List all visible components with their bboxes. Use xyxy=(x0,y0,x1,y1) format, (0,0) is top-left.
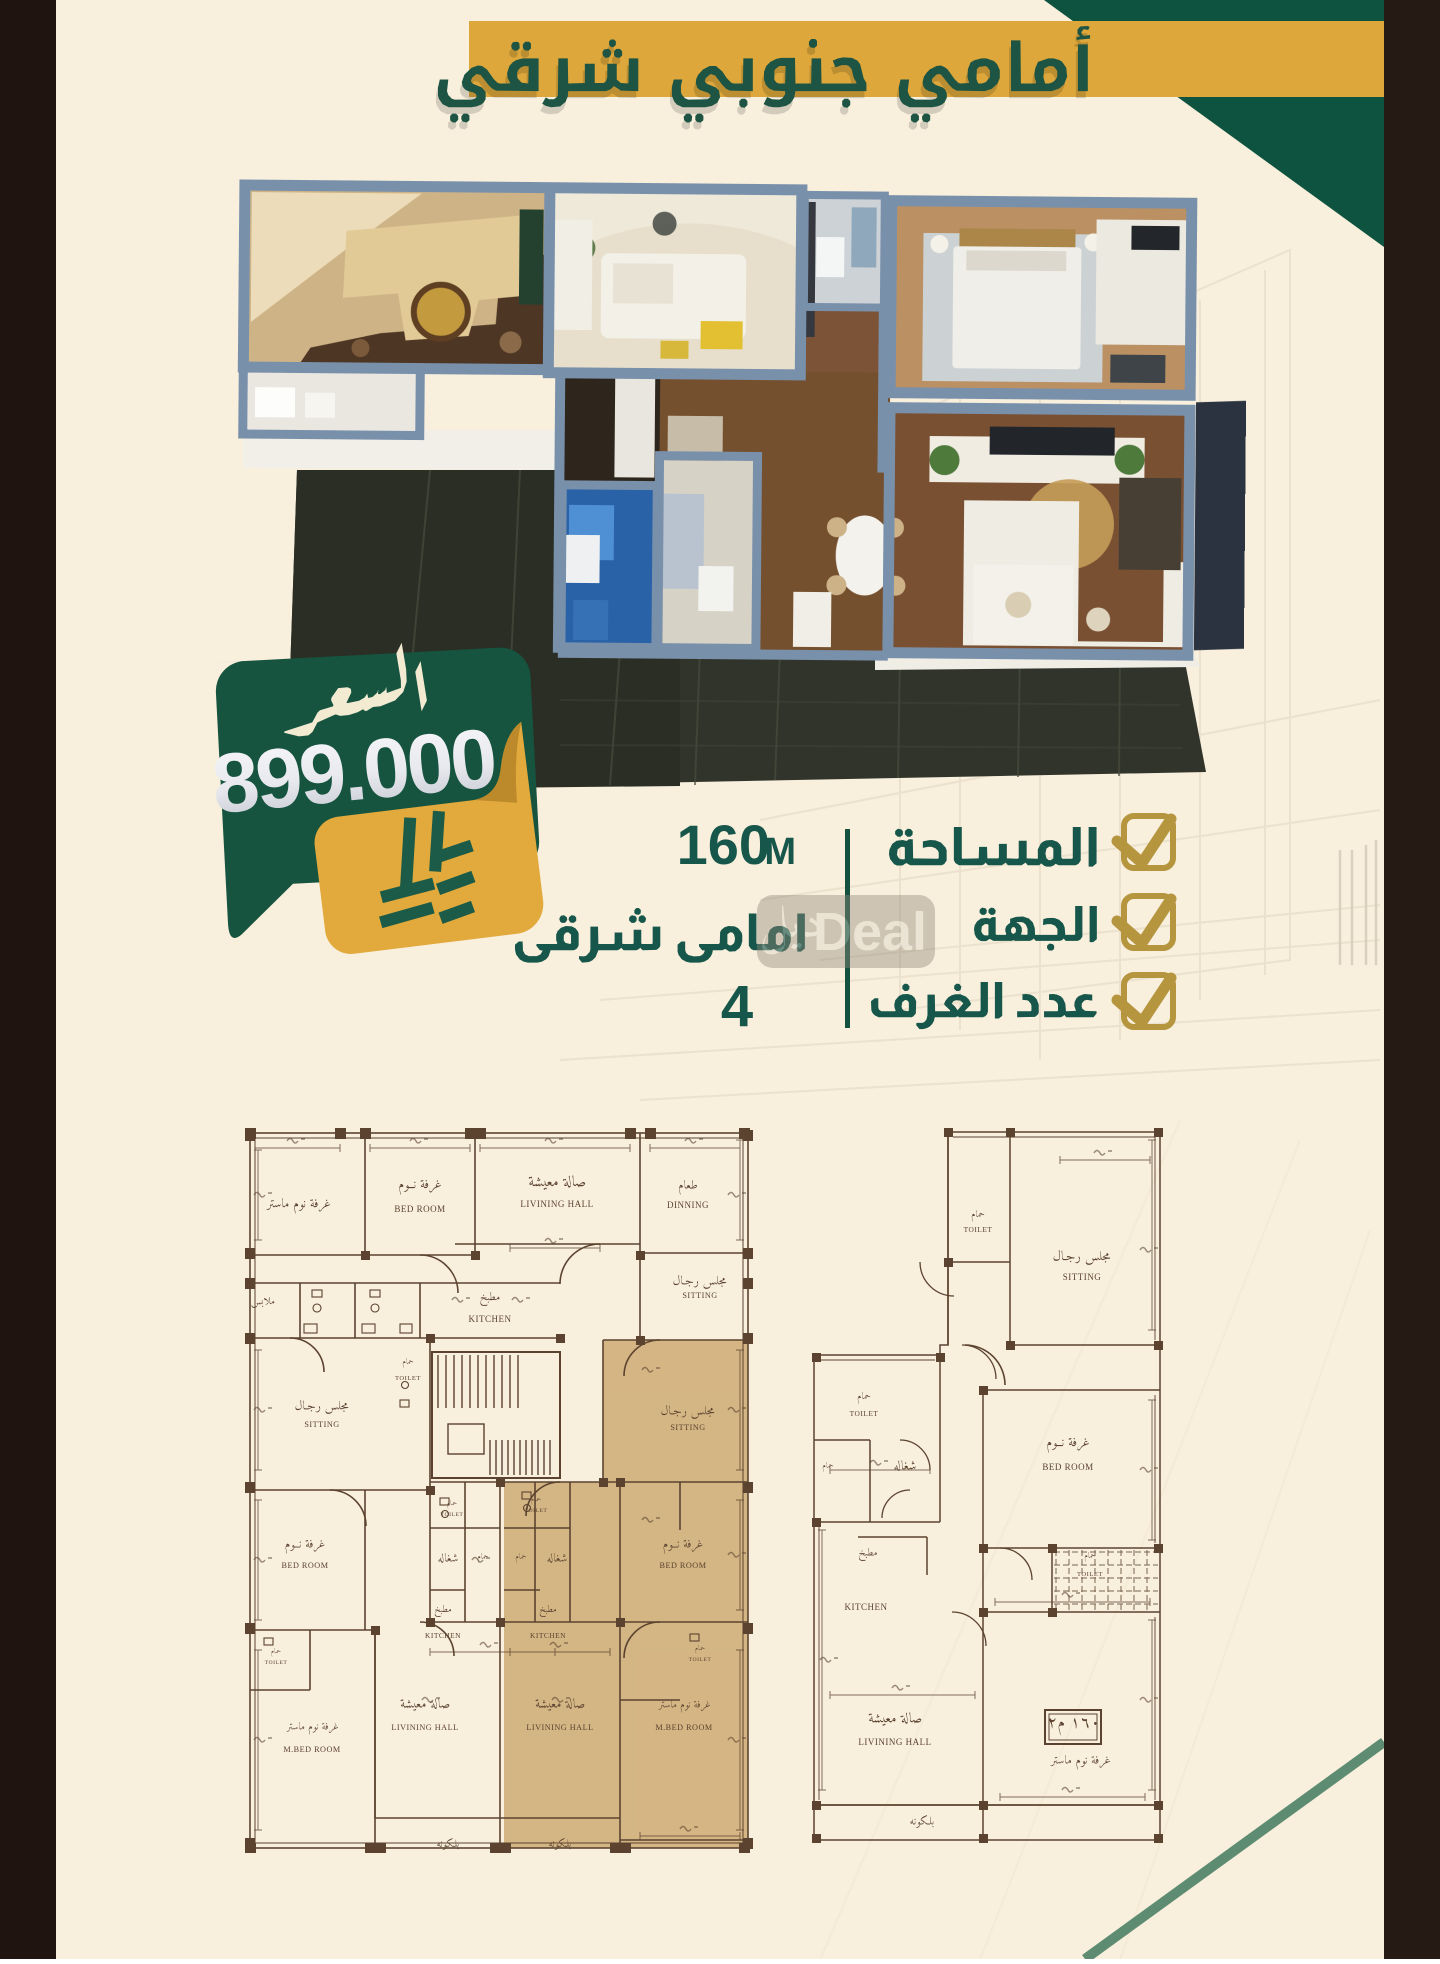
svg-text:KITCHEN: KITCHEN xyxy=(530,1631,566,1640)
svg-text:160: 160 xyxy=(677,813,770,876)
svg-text:SITTING: SITTING xyxy=(304,1420,339,1429)
svg-text:SITTING: SITTING xyxy=(670,1423,705,1432)
svg-text:SITTING: SITTING xyxy=(682,1291,717,1300)
svg-text:M: M xyxy=(764,831,796,873)
svg-text:TOILET: TOILET xyxy=(441,1512,464,1518)
svg-text:KITCHEN: KITCHEN xyxy=(425,1631,461,1640)
svg-text:BED ROOM: BED ROOM xyxy=(282,1561,329,1570)
svg-text:KITCHEN: KITCHEN xyxy=(469,1314,512,1324)
svg-text:SITTING: SITTING xyxy=(1063,1272,1102,1282)
svg-text:LIVINING HALL: LIVINING HALL xyxy=(391,1723,458,1732)
svg-text:BED ROOM: BED ROOM xyxy=(660,1561,707,1570)
svg-text:LIVINING HALL: LIVINING HALL xyxy=(858,1737,931,1747)
svg-text:BED ROOM: BED ROOM xyxy=(394,1204,445,1214)
svg-text:M.BED ROOM: M.BED ROOM xyxy=(283,1745,341,1754)
svg-text:LIVINING HALL: LIVINING HALL xyxy=(520,1199,593,1209)
svg-text:KITCHEN: KITCHEN xyxy=(845,1602,888,1612)
svg-text:Deal: Deal xyxy=(813,902,927,962)
svg-text:M.BED ROOM: M.BED ROOM xyxy=(655,1723,713,1732)
svg-text:TOILET: TOILET xyxy=(964,1225,993,1234)
svg-text:TOILET: TOILET xyxy=(525,1508,548,1514)
svg-text:TOILET: TOILET xyxy=(395,1375,421,1382)
svg-text:TOILET: TOILET xyxy=(850,1409,879,1418)
svg-text:DINNING: DINNING xyxy=(667,1200,709,1210)
svg-text:TOILET: TOILET xyxy=(1077,1571,1103,1578)
svg-text:TOILET: TOILET xyxy=(689,1657,712,1663)
svg-text:LIVINING HALL: LIVINING HALL xyxy=(526,1723,593,1732)
svg-text:4: 4 xyxy=(721,974,753,1039)
svg-text:BED ROOM: BED ROOM xyxy=(1042,1462,1093,1472)
svg-text:TOILET: TOILET xyxy=(265,1660,288,1666)
